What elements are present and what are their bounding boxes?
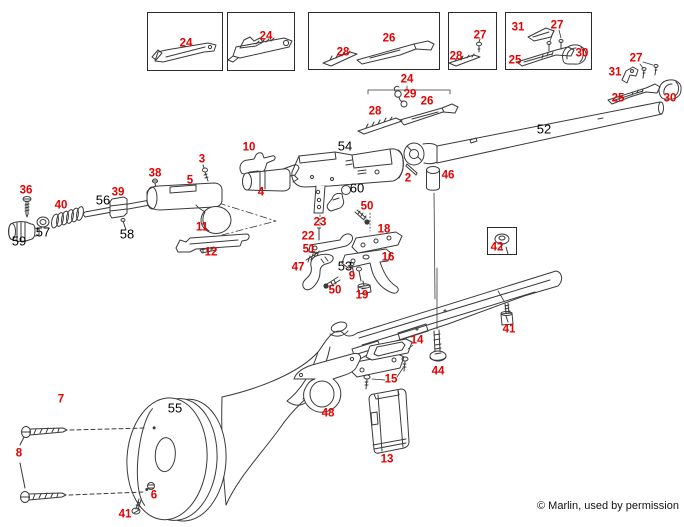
- part-label-15: 15: [385, 374, 398, 386]
- part-label-30: 30: [576, 48, 589, 60]
- part-label-3: 3: [199, 154, 205, 166]
- part-label-16: 16: [382, 252, 395, 264]
- part-label-30: 30: [664, 93, 677, 105]
- part-label-24: 24: [401, 74, 414, 86]
- part-label-18: 18: [378, 224, 391, 236]
- part-label-19: 19: [356, 290, 369, 302]
- part-label-13: 13: [381, 454, 394, 466]
- part-label-38: 38: [149, 168, 162, 180]
- part-label-2: 2: [405, 173, 411, 185]
- part-label-23: 23: [314, 217, 327, 229]
- part-label-41: 41: [119, 509, 132, 521]
- part-label-27: 27: [551, 20, 564, 32]
- receiver-plug-drawing: [427, 167, 440, 300]
- part-label-47: 47: [292, 262, 305, 274]
- part-label-11: 11: [196, 222, 208, 234]
- part-label-6: 6: [151, 490, 157, 502]
- part-label-10: 10: [243, 142, 256, 154]
- part-label-24: 24: [260, 31, 273, 43]
- part-label-9: 9: [349, 271, 355, 283]
- part-label-26: 26: [421, 96, 434, 108]
- part-label-25: 25: [612, 93, 625, 105]
- part-label-59: 59: [12, 235, 26, 248]
- part-label-48: 48: [322, 408, 335, 420]
- part-label-50: 50: [361, 201, 374, 213]
- part-label-50: 50: [329, 285, 342, 297]
- part-label-8: 8: [16, 448, 22, 460]
- part-label-46: 46: [442, 170, 455, 182]
- part-label-57: 57: [36, 226, 50, 239]
- part-label-54: 54: [338, 140, 352, 153]
- part-label-28: 28: [369, 106, 382, 118]
- part-label-25: 25: [509, 55, 522, 67]
- bolt-drawing: [147, 153, 299, 253]
- part-label-39: 39: [112, 187, 125, 199]
- part-label-58: 58: [120, 228, 134, 241]
- cartridge-guide-drawing: [327, 186, 350, 212]
- part-label-52: 52: [537, 123, 551, 136]
- part-label-40: 40: [55, 200, 68, 212]
- part-label-12: 12: [205, 247, 218, 259]
- part-label-44: 44: [432, 366, 445, 378]
- part-label-41: 41: [503, 324, 516, 336]
- stock-drawing: [222, 271, 562, 505]
- diagram-canvas: © Marlin, used by permission 24242826272…: [0, 0, 684, 527]
- barrel-drawing: [404, 102, 664, 165]
- part-label-51: 51: [303, 244, 316, 256]
- part-label-7: 7: [58, 394, 64, 406]
- part-label-27: 27: [474, 30, 487, 42]
- part-label-24: 24: [180, 38, 193, 50]
- part-label-60: 60: [350, 182, 364, 195]
- part-label-26: 26: [383, 33, 396, 45]
- part-label-5: 5: [187, 175, 193, 187]
- part-label-29: 29: [404, 89, 417, 101]
- copyright-note: © Marlin, used by permission: [537, 500, 679, 512]
- part-label-22: 22: [302, 231, 315, 243]
- part-label-31: 31: [512, 22, 525, 34]
- part-label-36: 36: [20, 185, 33, 197]
- part-label-31: 31: [609, 67, 622, 79]
- part-label-55: 55: [168, 402, 182, 415]
- part-label-56: 56: [96, 194, 110, 207]
- part-label-42: 42: [491, 242, 504, 254]
- part-label-27: 27: [630, 53, 643, 65]
- inset-box-3: [308, 12, 440, 70]
- part-label-28: 28: [450, 51, 463, 63]
- part-label-4: 4: [258, 187, 264, 199]
- magazine-drawing: [369, 389, 409, 453]
- part-label-14: 14: [411, 335, 424, 347]
- part-label-28: 28: [337, 47, 350, 59]
